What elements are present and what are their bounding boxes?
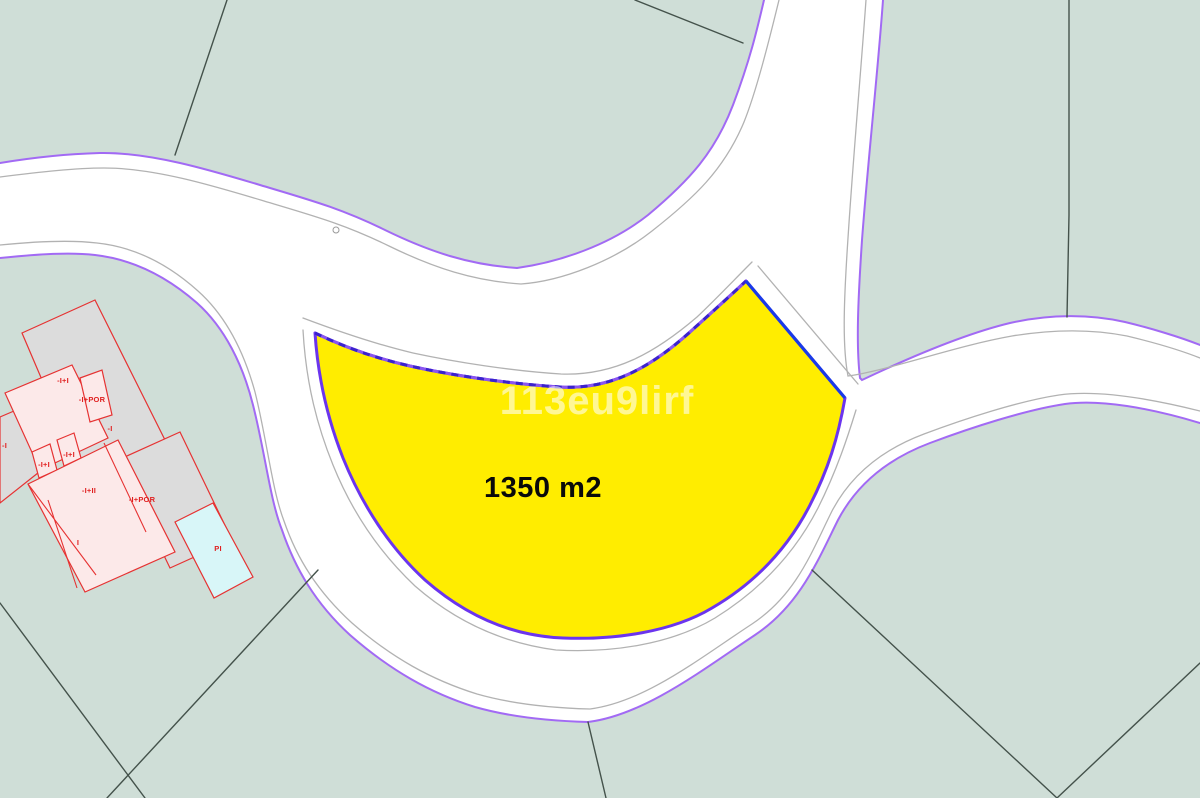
building-label: -I+POR [79, 395, 106, 404]
parcel-area-label: 1350 m2 [484, 472, 602, 504]
building-label: -I+II [82, 486, 96, 495]
building-label: -I [108, 424, 113, 433]
building-label: I [77, 538, 79, 547]
map-svg: -I -I+I -I+POR -I -I+I -I+I -I+II -I+POR… [0, 0, 1200, 798]
building-label: -I+I [63, 450, 75, 459]
building-label: -I+POR [129, 495, 156, 504]
building-label: -I [2, 441, 7, 450]
building-label: -I+I [38, 460, 50, 469]
building-label: -I+I [57, 376, 69, 385]
pool-label: PI [214, 544, 222, 553]
road-survey-marker [333, 227, 339, 233]
watermark: 113eu9lirf [500, 379, 695, 423]
cadastral-map-canvas[interactable]: -I -I+I -I+POR -I -I+I -I+I -I+II -I+POR… [0, 0, 1200, 798]
